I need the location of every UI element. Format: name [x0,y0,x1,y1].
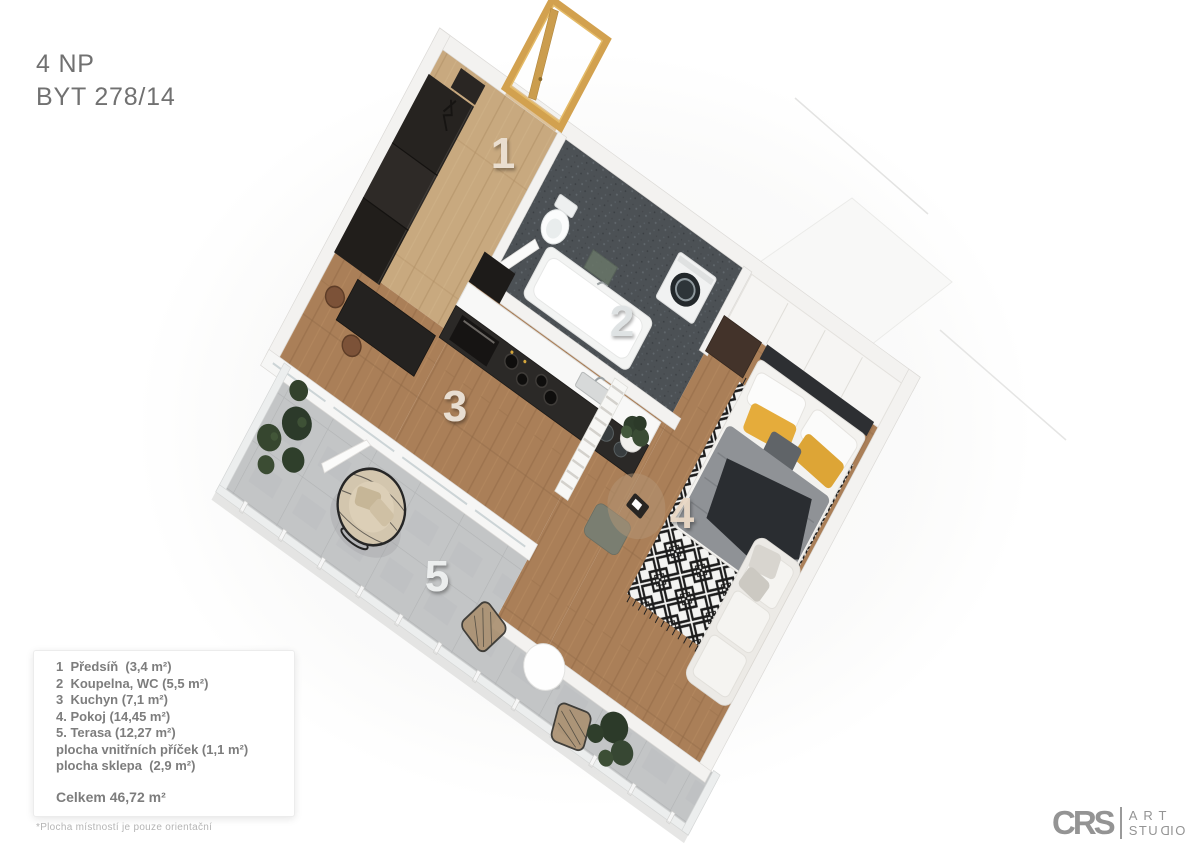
room-number-5: 5 [425,552,449,601]
legend-item: 4. Pokoj (14,45 m²) [56,709,294,726]
room-number-1: 1 [491,129,515,178]
legend-item: 1 Předsíň (3,4 m²) [56,659,294,676]
studio-logo: CRS ART STUDIO [1052,806,1187,839]
unit-label: BYT 278/14 [36,81,176,114]
logo-brand-mark: CRS [1052,806,1120,839]
legend-card: 1 Předsíň (3,4 m²) 2 Koupelna, WC (5,5 m… [33,650,295,817]
floorplan-render: 1 2 3 4 5 4 NP BYT 278/14 1 Předsíň (3,4… [0,0,1200,848]
legend-item: 3 Kuchyn (7,1 m²) [56,692,294,709]
logo-line-studio: STUDIO [1129,823,1187,838]
logo-line-art: ART [1129,808,1187,823]
legend-footnote: *Plocha místností je pouze orientační [36,822,212,833]
room-number-2: 2 [610,297,634,346]
room-number-4: 4 [670,489,695,538]
logo-divider [1120,807,1122,839]
room-number-3: 3 [443,382,467,431]
mirrored-d-glyph: D [1159,823,1170,838]
legend-item: 2 Koupelna, WC (5,5 m²) [56,676,294,693]
legend-item: plocha vnitřních příček (1,1 m²) [56,742,294,759]
legend-item: plocha sklepa (2,9 m²) [56,758,294,775]
title-block: 4 NP BYT 278/14 [36,48,176,114]
legend-item: 5. Terasa (12,27 m²) [56,725,294,742]
floor-label: 4 NP [36,48,176,81]
legend-total: Celkem 46,72 m² [56,789,294,805]
